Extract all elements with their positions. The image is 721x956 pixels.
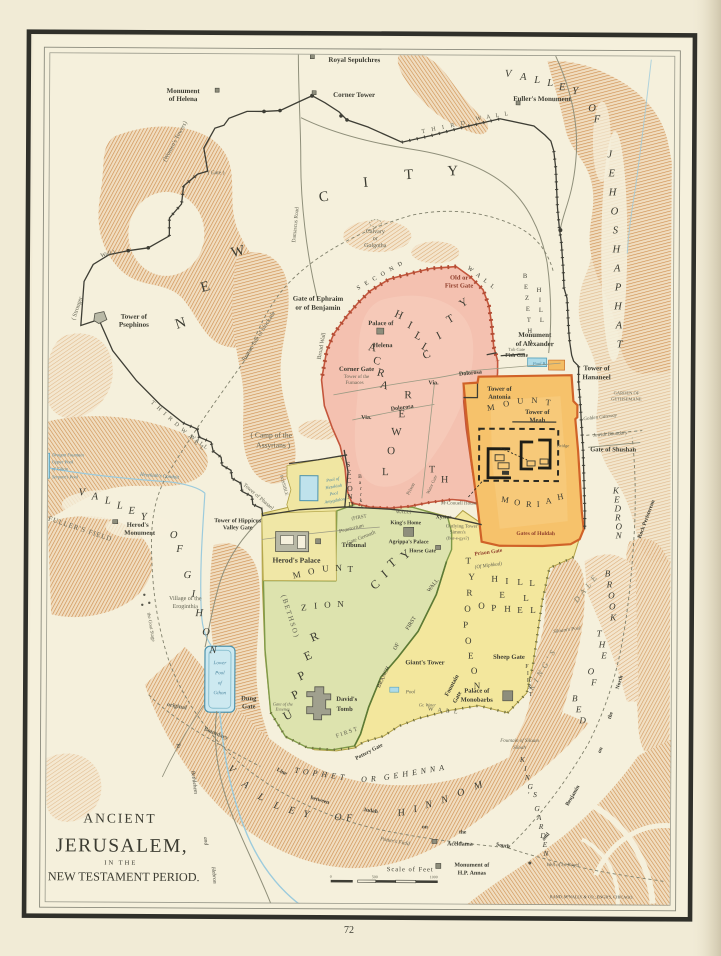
svg-text:Gate: Gate bbox=[242, 703, 256, 710]
svg-text:Valley Gate: Valley Gate bbox=[223, 525, 253, 531]
svg-text:R: R bbox=[606, 579, 617, 589]
svg-text:F: F bbox=[593, 114, 604, 125]
svg-text:Hananeel: Hananeel bbox=[582, 373, 610, 381]
svg-text:O: O bbox=[464, 604, 471, 614]
svg-text:Tomb: Tomb bbox=[337, 706, 353, 713]
svg-text:V: V bbox=[79, 487, 89, 498]
svg-text:O: O bbox=[609, 601, 620, 611]
svg-text:NEW TESTAMENT PERIOD.: NEW TESTAMENT PERIOD. bbox=[48, 869, 200, 884]
svg-text:( Camp of the: ( Camp of the bbox=[250, 430, 292, 439]
svg-text:N: N bbox=[531, 395, 537, 405]
svg-text:Tribunal: Tribunal bbox=[342, 542, 367, 549]
svg-text:Gate of Ephraim: Gate of Ephraim bbox=[293, 295, 344, 303]
svg-text:Agrippa's Palace: Agrippa's Palace bbox=[389, 539, 429, 545]
svg-text:A: A bbox=[613, 263, 624, 274]
svg-text:King's Home: King's Home bbox=[390, 520, 421, 526]
svg-text:K: K bbox=[609, 612, 620, 622]
svg-text:T: T bbox=[429, 464, 435, 475]
svg-text:L: L bbox=[539, 307, 543, 314]
svg-text:or: or bbox=[373, 236, 378, 242]
svg-text:S: S bbox=[613, 225, 622, 236]
svg-text:R: R bbox=[538, 822, 548, 831]
svg-text:72: 72 bbox=[344, 925, 354, 936]
svg-text:T: T bbox=[404, 167, 414, 184]
svg-text:Z: Z bbox=[525, 295, 529, 302]
svg-text:E: E bbox=[607, 168, 618, 179]
svg-text:Via.: Via. bbox=[428, 380, 439, 386]
svg-text:E: E bbox=[575, 704, 586, 714]
svg-text:I: I bbox=[523, 764, 531, 773]
svg-text:H: H bbox=[613, 301, 626, 312]
svg-text:H: H bbox=[608, 187, 621, 198]
svg-text:Monobarbs: Monobarbs bbox=[461, 697, 494, 704]
svg-text:Bridge: Bridge bbox=[557, 443, 569, 448]
svg-text:Palace of: Palace of bbox=[464, 688, 490, 695]
svg-text:D: D bbox=[578, 715, 590, 725]
svg-text:Tower of: Tower of bbox=[525, 409, 550, 416]
svg-text:on: on bbox=[422, 824, 428, 830]
svg-text:Giant's Tower: Giant's Tower bbox=[405, 659, 444, 666]
svg-text:Tower of the: Tower of the bbox=[344, 375, 370, 380]
svg-text:I: I bbox=[314, 601, 317, 611]
svg-text:L: L bbox=[533, 75, 544, 86]
svg-text:V: V bbox=[505, 69, 515, 80]
svg-text:Gate of Shushan: Gate of Shushan bbox=[590, 446, 636, 453]
svg-text:Outlying Tower: Outlying Tower bbox=[446, 524, 478, 529]
svg-text:Dragon Fountain: Dragon Fountain bbox=[51, 452, 84, 457]
svg-text:Corner Gate: Corner Gate bbox=[339, 366, 374, 373]
svg-text:K: K bbox=[519, 755, 529, 764]
svg-text:E: E bbox=[286, 805, 299, 818]
svg-text:I: I bbox=[527, 671, 529, 677]
svg-text:O: O bbox=[608, 590, 619, 600]
svg-text:B: B bbox=[523, 273, 528, 280]
svg-text:T: T bbox=[529, 692, 533, 698]
svg-text:H: H bbox=[598, 639, 610, 649]
svg-text:A: A bbox=[91, 491, 102, 502]
svg-text:Sheep Gate: Sheep Gate bbox=[493, 654, 525, 661]
svg-text:Golgotha: Golgotha bbox=[364, 243, 387, 249]
svg-text:B: B bbox=[572, 693, 582, 703]
svg-text:GARDEN OF: GARDEN OF bbox=[614, 390, 640, 395]
svg-text:Monument: Monument bbox=[518, 331, 552, 339]
svg-text:H.P. Annas: H.P. Annas bbox=[458, 871, 487, 877]
svg-text:S: S bbox=[528, 685, 531, 691]
svg-text:Y: Y bbox=[572, 86, 582, 97]
svg-text:L: L bbox=[116, 501, 127, 512]
svg-text:Y: Y bbox=[447, 163, 458, 179]
svg-text:F: F bbox=[175, 544, 186, 555]
svg-text:L: L bbox=[546, 78, 557, 89]
svg-text:Tower of: Tower of bbox=[487, 386, 512, 393]
svg-text:E: E bbox=[468, 651, 474, 661]
svg-text:R: R bbox=[404, 389, 412, 401]
svg-text:David's: David's bbox=[336, 696, 357, 703]
svg-text:Tower of Hippicus: Tower of Hippicus bbox=[214, 518, 262, 524]
svg-text:and: and bbox=[202, 837, 209, 846]
svg-text:W: W bbox=[391, 426, 402, 438]
svg-text:Monument of: Monument of bbox=[454, 863, 490, 869]
svg-text:I: I bbox=[539, 297, 541, 304]
svg-text:Gates of Huldah: Gates of Huldah bbox=[516, 531, 555, 537]
svg-text:Fountain of Siloam: Fountain of Siloam bbox=[499, 739, 539, 744]
svg-text:E: E bbox=[600, 650, 611, 660]
svg-text:Y: Y bbox=[468, 572, 475, 582]
svg-text:P: P bbox=[491, 603, 496, 613]
svg-text:Aceldama: Aceldama bbox=[447, 841, 473, 847]
svg-text:O: O bbox=[170, 530, 182, 541]
svg-text:Tob Gate: Tob Gate bbox=[508, 347, 525, 352]
svg-text:O: O bbox=[465, 636, 472, 646]
svg-text:L: L bbox=[540, 317, 544, 324]
svg-text:L: L bbox=[517, 577, 523, 587]
svg-text:T: T bbox=[617, 339, 627, 350]
svg-text:Antonia: Antonia bbox=[488, 394, 511, 401]
svg-text:(Bar-e-gys?): (Bar-e-gys?) bbox=[446, 535, 469, 540]
svg-text:Fish Gate: Fish Gate bbox=[505, 353, 528, 359]
svg-text:E: E bbox=[524, 284, 528, 291]
svg-text:Pool: Pool bbox=[214, 671, 225, 676]
svg-text:E: E bbox=[517, 605, 523, 615]
svg-text:Psephinos: Psephinos bbox=[119, 321, 149, 329]
svg-text:H: H bbox=[504, 604, 511, 614]
svg-text:Siloah: Siloah bbox=[513, 746, 526, 751]
svg-text:Via.: Via. bbox=[361, 415, 372, 421]
svg-text:Furnaces: Furnaces bbox=[345, 381, 363, 386]
svg-text:O: O bbox=[514, 497, 521, 508]
svg-text:'S: 'S bbox=[528, 790, 541, 799]
svg-text:G: G bbox=[184, 570, 196, 581]
svg-text:of: of bbox=[218, 681, 223, 686]
svg-text:Corner Tower: Corner Tower bbox=[333, 91, 375, 99]
svg-text:E: E bbox=[558, 82, 569, 93]
svg-text:s: s bbox=[361, 504, 363, 510]
svg-text:Well of en Rogel: Well of en Rogel bbox=[546, 863, 579, 868]
svg-text:H: H bbox=[441, 474, 448, 485]
svg-text:Z: Z bbox=[301, 602, 307, 612]
svg-text:L: L bbox=[530, 605, 536, 615]
svg-text:P: P bbox=[463, 620, 468, 630]
svg-text:of Helena: of Helena bbox=[169, 95, 198, 103]
svg-text:H: H bbox=[611, 244, 624, 255]
svg-text:Tower of: Tower of bbox=[121, 313, 148, 321]
svg-text:N: N bbox=[542, 849, 552, 858]
svg-text:Herod's Palace: Herod's Palace bbox=[273, 556, 322, 565]
svg-text:N: N bbox=[524, 773, 534, 782]
svg-text:Monument: Monument bbox=[124, 530, 156, 537]
svg-text:Assyrians ): Assyrians ) bbox=[256, 440, 291, 449]
svg-text:O: O bbox=[324, 600, 331, 610]
svg-text:Fuller's Monument: Fuller's Monument bbox=[513, 95, 571, 103]
svg-text:Gihon: Gihon bbox=[214, 691, 227, 696]
svg-text:Meah: Meah bbox=[529, 417, 545, 424]
svg-text:T: T bbox=[347, 564, 353, 574]
svg-text:G: G bbox=[534, 804, 543, 813]
svg-text:Essenes: Essenes bbox=[275, 707, 291, 712]
svg-text:IN THE: IN THE bbox=[104, 860, 137, 867]
svg-text:T: T bbox=[465, 556, 471, 566]
svg-text:Upper Pool: Upper Pool bbox=[52, 459, 74, 464]
svg-text:A: A bbox=[615, 320, 626, 331]
svg-text:0: 0 bbox=[330, 874, 332, 879]
svg-text:Tower of: Tower of bbox=[583, 364, 610, 372]
svg-text:( Gate ): ( Gate ) bbox=[208, 169, 225, 176]
svg-text:T: T bbox=[527, 317, 531, 324]
svg-text:A: A bbox=[536, 813, 546, 822]
svg-text:O: O bbox=[471, 666, 478, 676]
svg-text:GETHSEMANE: GETHSEMANE bbox=[611, 396, 642, 401]
svg-text:N: N bbox=[208, 645, 220, 656]
svg-text:Gr. Water: Gr. Water bbox=[419, 702, 437, 707]
svg-text:O: O bbox=[611, 206, 623, 217]
svg-text:First Gate: First Gate bbox=[445, 282, 473, 289]
svg-text:H: H bbox=[396, 806, 410, 819]
svg-text:O: O bbox=[588, 103, 600, 114]
svg-text:Old or: Old or bbox=[450, 274, 468, 281]
svg-text:D: D bbox=[348, 500, 354, 509]
svg-text:OR: OR bbox=[361, 774, 380, 784]
svg-text:O: O bbox=[387, 445, 395, 457]
svg-text:L: L bbox=[382, 466, 389, 478]
svg-text:Pool: Pool bbox=[405, 690, 416, 695]
svg-text:Village of the: Village of the bbox=[169, 595, 202, 602]
svg-text:Y: Y bbox=[303, 809, 314, 821]
svg-text:JERUSALEM,: JERUSALEM, bbox=[56, 835, 189, 857]
svg-text:Y: Y bbox=[141, 512, 151, 523]
svg-text:R: R bbox=[466, 588, 472, 598]
svg-text:Serpent's Pool: Serpent's Pool bbox=[52, 474, 79, 479]
svg-text:A: A bbox=[519, 72, 530, 83]
svg-text:Royal Sepulchres: Royal Sepulchres bbox=[328, 56, 380, 64]
svg-text:L: L bbox=[523, 593, 529, 603]
svg-text:Horse Gate: Horse Gate bbox=[409, 548, 436, 554]
svg-text:WALL): WALL) bbox=[396, 510, 412, 515]
svg-text:N: N bbox=[335, 563, 342, 573]
svg-text:O: O bbox=[478, 601, 485, 611]
svg-text:I: I bbox=[537, 499, 540, 509]
svg-text:Xystus: Xystus bbox=[436, 514, 452, 520]
svg-text:Palace of: Palace of bbox=[368, 320, 394, 327]
svg-text:Monument: Monument bbox=[167, 87, 201, 95]
svg-text:Scale of Feet: Scale of Feet bbox=[387, 866, 434, 873]
svg-text:O: O bbox=[588, 666, 599, 676]
svg-text:H: H bbox=[537, 287, 542, 294]
svg-text:L: L bbox=[529, 578, 535, 588]
svg-text:F: F bbox=[345, 813, 356, 824]
svg-text:or of Benjamin: or of Benjamin bbox=[295, 304, 340, 312]
svg-text:E: E bbox=[128, 506, 139, 517]
svg-text:U: U bbox=[517, 396, 524, 406]
svg-text:T: T bbox=[597, 628, 606, 638]
svg-text:N: N bbox=[337, 599, 344, 609]
svg-text:ANCIENT: ANCIENT bbox=[83, 810, 156, 825]
svg-text:Eroginthia: Eroginthia bbox=[173, 604, 199, 610]
svg-text:of Gihon: of Gihon bbox=[52, 466, 69, 471]
svg-text:J: J bbox=[607, 149, 616, 160]
svg-text:R: R bbox=[526, 499, 532, 509]
svg-text:I: I bbox=[505, 576, 508, 586]
svg-text:E: E bbox=[526, 306, 530, 313]
svg-text:Pool B.: Pool B. bbox=[532, 361, 547, 366]
svg-text:Calvary: Calvary bbox=[366, 229, 385, 235]
svg-text:the: the bbox=[459, 830, 467, 836]
svg-text:Dung: Dung bbox=[241, 695, 257, 702]
svg-text:O: O bbox=[334, 812, 346, 824]
svg-text:N: N bbox=[615, 530, 626, 540]
svg-text:B: B bbox=[605, 568, 615, 578]
svg-text:P: P bbox=[614, 282, 625, 293]
svg-text:L: L bbox=[104, 496, 115, 507]
svg-text:H: H bbox=[491, 574, 498, 584]
svg-text:1000: 1000 bbox=[430, 874, 438, 879]
svg-text:500: 500 bbox=[372, 874, 378, 879]
svg-text:R: R bbox=[527, 678, 531, 684]
svg-text:E: E bbox=[499, 590, 505, 600]
svg-text:O: O bbox=[202, 627, 214, 638]
svg-text:Lower: Lower bbox=[213, 661, 227, 666]
svg-text:F: F bbox=[590, 677, 601, 687]
svg-text:McConuell House: McConuell House bbox=[441, 500, 478, 506]
